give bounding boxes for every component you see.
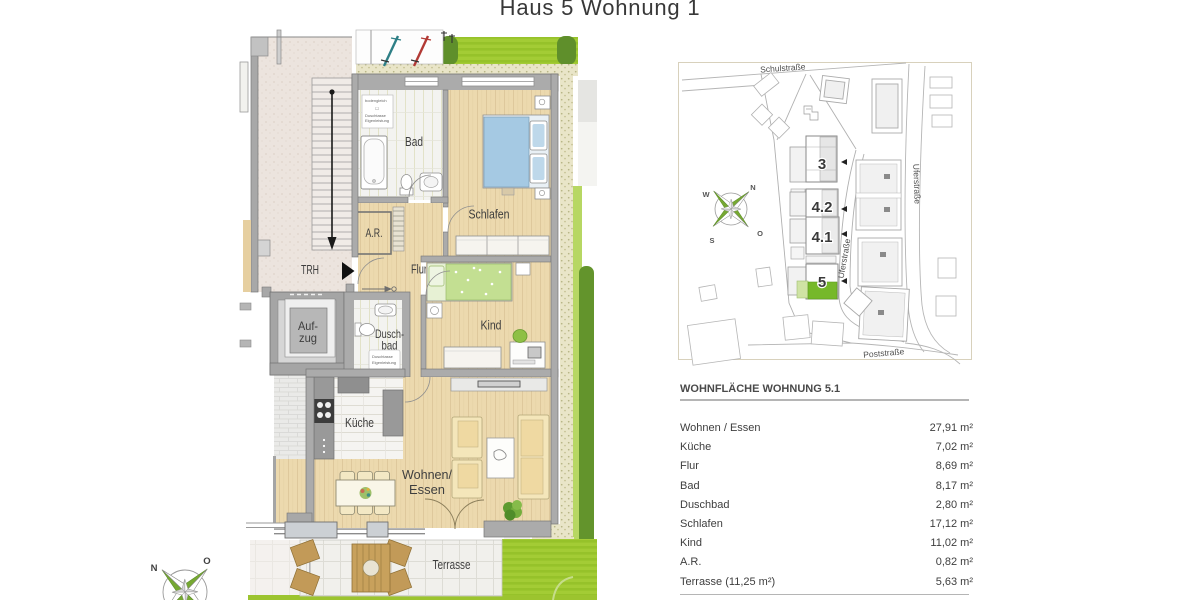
svg-text:Schlafen: Schlafen bbox=[469, 207, 510, 222]
svg-text:Essen: Essen bbox=[409, 482, 445, 497]
svg-text:zug: zug bbox=[299, 331, 317, 345]
svg-text:☐: ☐ bbox=[375, 106, 379, 111]
svg-text:4.2: 4.2 bbox=[812, 199, 833, 216]
svg-text:Kind: Kind bbox=[481, 318, 502, 333]
svg-text:TRH: TRH bbox=[301, 263, 319, 277]
svg-text:Wohnen/: Wohnen/ bbox=[402, 467, 452, 482]
svg-text:A.R.: A.R. bbox=[366, 226, 383, 240]
svg-text:O: O bbox=[203, 556, 210, 567]
svg-text:Flur: Flur bbox=[411, 262, 427, 277]
svg-text:Uferstraße: Uferstraße bbox=[911, 164, 922, 205]
svg-text:N: N bbox=[750, 183, 755, 192]
svg-text:O: O bbox=[757, 229, 763, 238]
svg-text:Duschtasse: Duschtasse bbox=[372, 354, 394, 359]
svg-text:4.1: 4.1 bbox=[812, 229, 833, 246]
svg-text:Bad: Bad bbox=[405, 134, 423, 149]
svg-text:W: W bbox=[702, 190, 710, 199]
svg-text:Küche: Küche bbox=[345, 415, 374, 430]
svg-text:Terrasse: Terrasse bbox=[433, 557, 471, 572]
svg-text:3: 3 bbox=[818, 156, 826, 173]
svg-text:5: 5 bbox=[818, 274, 826, 291]
svg-text:N: N bbox=[151, 563, 158, 574]
svg-text:S: S bbox=[709, 236, 714, 245]
svg-text:bad: bad bbox=[382, 339, 398, 353]
svg-text:bodengleich: bodengleich bbox=[365, 98, 387, 103]
svg-text:Eigenleistung: Eigenleistung bbox=[372, 360, 396, 365]
svg-text:Eigenleistung: Eigenleistung bbox=[365, 118, 389, 123]
